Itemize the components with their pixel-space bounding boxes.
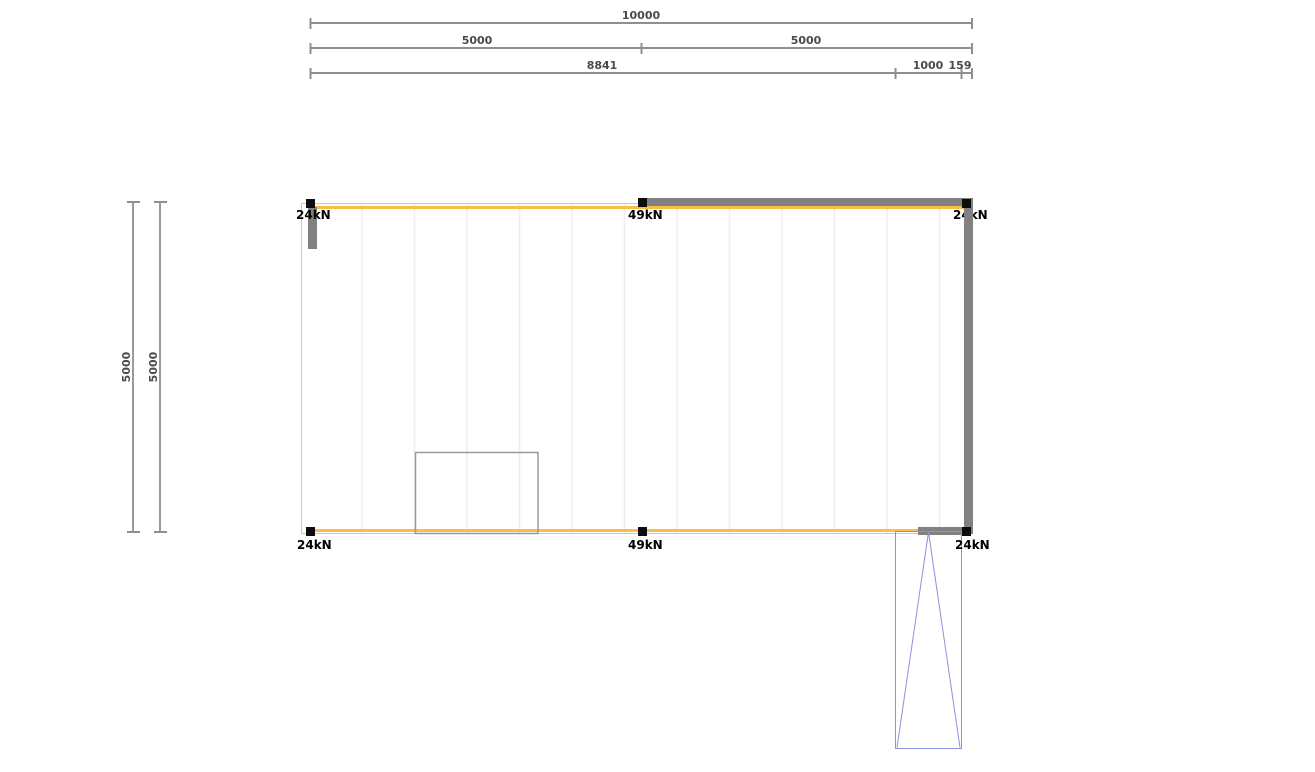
dimension-label-half-left: 5000 [462, 34, 493, 47]
load-label-bottom-right: 24kN [955, 538, 990, 552]
top-dimension-total: 10000 [311, 9, 973, 29]
dimension-label-seg-edge: 159 [949, 59, 972, 72]
support-marker-top-right[interactable] [962, 199, 971, 208]
support-marker-bottom-mid[interactable] [638, 527, 647, 536]
top-dimension-halves: 5000 5000 [311, 34, 973, 54]
left-dimension-inner: 5000 [147, 202, 167, 532]
support-marker-top-mid[interactable] [638, 198, 647, 207]
dimension-label-seg-opening: 1000 [913, 59, 944, 72]
load-label-top-mid: 49kN [628, 208, 663, 222]
support-marker-bottom-left[interactable] [306, 527, 315, 536]
load-label-bottom-left: 24kN [297, 538, 332, 552]
drawing-canvas: 10000 5000 5000 8841 1000 159 5000 5000 [0, 0, 1315, 772]
support-marker-bottom-right[interactable] [962, 527, 971, 536]
load-label-bottom-mid: 49kN [628, 538, 663, 552]
support-marker-top-left[interactable] [306, 199, 315, 208]
load-label-top-left: 24kN [296, 208, 331, 222]
door-swing-line [897, 532, 929, 748]
right-wall[interactable] [964, 200, 973, 534]
dimension-label-seg-main: 8841 [587, 59, 618, 72]
dimension-label-half-right: 5000 [791, 34, 822, 47]
top-dimension-segments: 8841 1000 159 [311, 59, 973, 79]
dimension-label-side-inner: 5000 [147, 351, 160, 382]
door-leaf-rect [896, 532, 962, 749]
door-swing-symbol[interactable] [896, 532, 962, 749]
dimension-label-total: 10000 [622, 9, 661, 22]
floor-outline [302, 204, 970, 534]
top-wall[interactable] [646, 198, 973, 206]
left-dimension-outer: 5000 [120, 202, 140, 532]
dimension-label-side-outer: 5000 [120, 351, 133, 382]
door-swing-line [929, 532, 961, 748]
